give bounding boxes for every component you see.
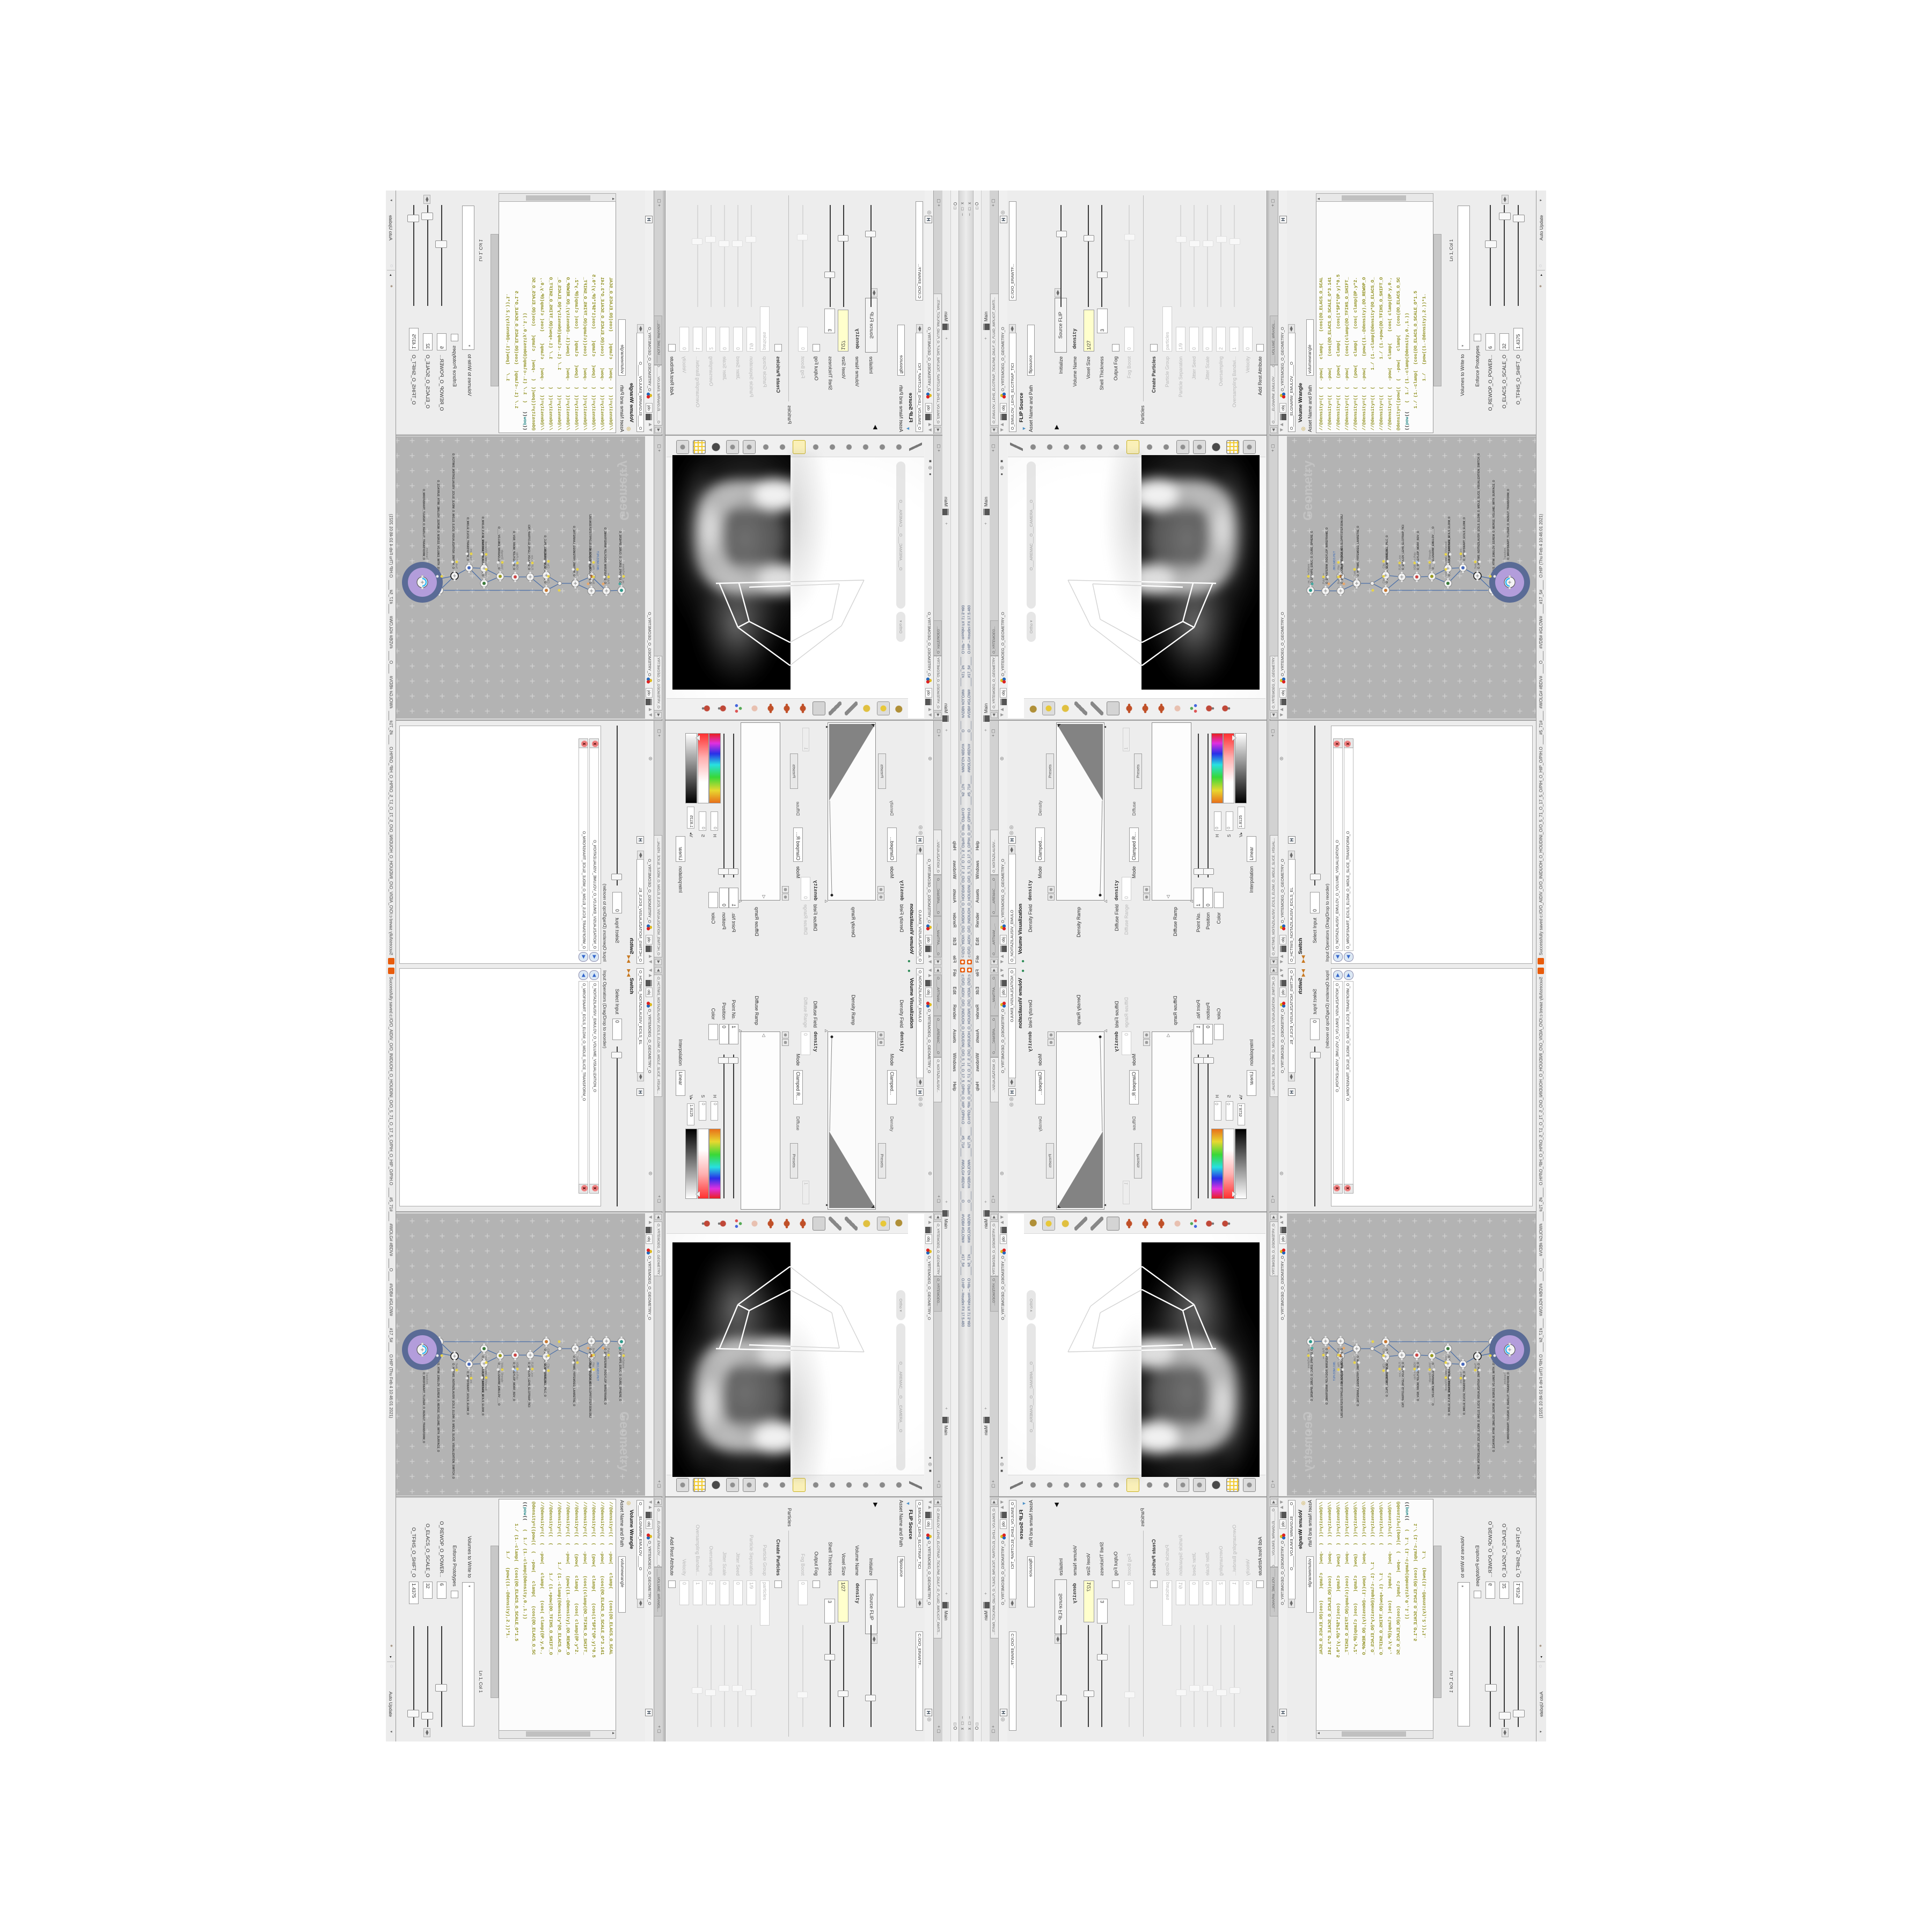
- svg-text:O_EMASFERIW_ROGYLOP_WIREFRAME_: O_EMASFERIW_ROGYLOP_WIREFRAME_O: [603, 1348, 606, 1404]
- svg-text:JBO,MD3.PET: JBO,MD3.PET: [596, 551, 599, 570]
- svg-text:O_MAELOOB_NAELOOB_O: O_MAELOOB_NAELOOB_O: [588, 548, 591, 584]
- svg-text:O_HCTIWS_NOITAZILAUSIV_ECILS_E: O_HCTIWS_NOITAZILAUSIV_ECILS_ELDIM_O_MID…: [451, 453, 455, 569]
- svg-text:O_MROFSNART_TLUSER_O_RESULT_TR: O_MROFSNART_TLUSER_O_RESULT_TRANSFORM_O: [422, 489, 425, 560]
- svg-text:O_HCTIWS_NOITAZILAUSIV_ECILS_E: O_HCTIWS_NOITAZILAUSIV_ECILS_ELDIM_O_MID…: [1477, 1363, 1481, 1479]
- svg-text:O_HCTIWS_NOITAZILAUSIV_ECILS_E: O_HCTIWS_NOITAZILAUSIV_ECILS_ELDIM_O_MID…: [451, 1363, 455, 1479]
- svg-text:O_BUD,IRREBEL_PILC_O: O_BUD,IRREBEL_PILC_O: [543, 535, 546, 568]
- svg-text:O_ECAFRUS_HTIW_EMULOV_EGREM_O_: O_ECAFRUS_HTIW_EMULOV_EGREM_O_MERGE_VOLU…: [436, 1349, 440, 1452]
- svg-text:Geometry: Geometry: [617, 1411, 631, 1472]
- svg-text:O_EMASFERIW_ROGYLOP_WIREFRAME_: O_EMASFERIW_ROGYLOP_WIREFRAME_O: [603, 528, 606, 584]
- svg-text:JBO,MD3.PET: JBO,MD3.PET: [596, 1362, 599, 1381]
- svg-text:O_MAELOOB_NAELOOB_O: O_MAELOOB_NAELOOB_O: [1341, 548, 1344, 584]
- svg-text:O_HCTIWS_NOITAZILAUSIV_ECILS_E: O_HCTIWS_NOITAZILAUSIV_ECILS_ELDIM_O_MID…: [1477, 453, 1481, 569]
- svg-text:O_BUD,IRREBEL_PILC_O: O_BUD,IRREBEL_PILC_O: [1386, 1364, 1389, 1397]
- svg-text:O_EMASFERIW_ROGYLOP_WIREFRAME_: O_EMASFERIW_ROGYLOP_WIREFRAME_O: [1326, 1348, 1329, 1404]
- svg-text:O_ECAFRUS_HTIW_EMULOV_EGREM_O_: O_ECAFRUS_HTIW_EMULOV_EGREM_O_MERGE_VOLU…: [436, 480, 440, 583]
- svg-text:O_MROFSNART_TLUSER_O_RESULT_TR: O_MROFSNART_TLUSER_O_RESULT_TRANSFORM_O: [422, 1372, 425, 1443]
- svg-text:O_MROFSNART_TLUSER_O_RESULT_TR: O_MROFSNART_TLUSER_O_RESULT_TRANSFORM_O: [1507, 1372, 1510, 1443]
- svg-text:JBO,MD3.PET: JBO,MD3.PET: [1333, 1362, 1336, 1381]
- svg-text:O_BUD,IRREBEL_PILC_O: O_BUD,IRREBEL_PILC_O: [543, 1364, 546, 1397]
- svg-text:O_MAELOOB_NAELOOB_O: O_MAELOOB_NAELOOB_O: [1341, 1348, 1344, 1384]
- svg-text:Geometry: Geometry: [617, 460, 631, 521]
- svg-text:O_ECAFRUS_HTIW_EMULOV_EGREM_O_: O_ECAFRUS_HTIW_EMULOV_EGREM_O_MERGE_VOLU…: [1492, 480, 1496, 583]
- svg-text:Geometry: Geometry: [1301, 1411, 1315, 1472]
- svg-text:O_MAELOOB_NAELOOB_O: O_MAELOOB_NAELOOB_O: [588, 1348, 591, 1384]
- svg-text:O_EMASFERIW_ROGYLOP_WIREFRAME_: O_EMASFERIW_ROGYLOP_WIREFRAME_O: [1326, 528, 1329, 584]
- svg-text:O_ECAFRUS_HTIW_EMULOV_EGREM_O_: O_ECAFRUS_HTIW_EMULOV_EGREM_O_MERGE_VOLU…: [1492, 1349, 1496, 1452]
- svg-text:Geometry: Geometry: [1301, 460, 1315, 521]
- svg-text:JBO,MD3.PET: JBO,MD3.PET: [1333, 551, 1336, 570]
- svg-text:O_BUD,IRREBEL_PILC_O: O_BUD,IRREBEL_PILC_O: [1386, 535, 1389, 568]
- svg-text:O_MROFSNART_TLUSER_O_RESULT_TR: O_MROFSNART_TLUSER_O_RESULT_TRANSFORM_O: [1507, 489, 1510, 560]
